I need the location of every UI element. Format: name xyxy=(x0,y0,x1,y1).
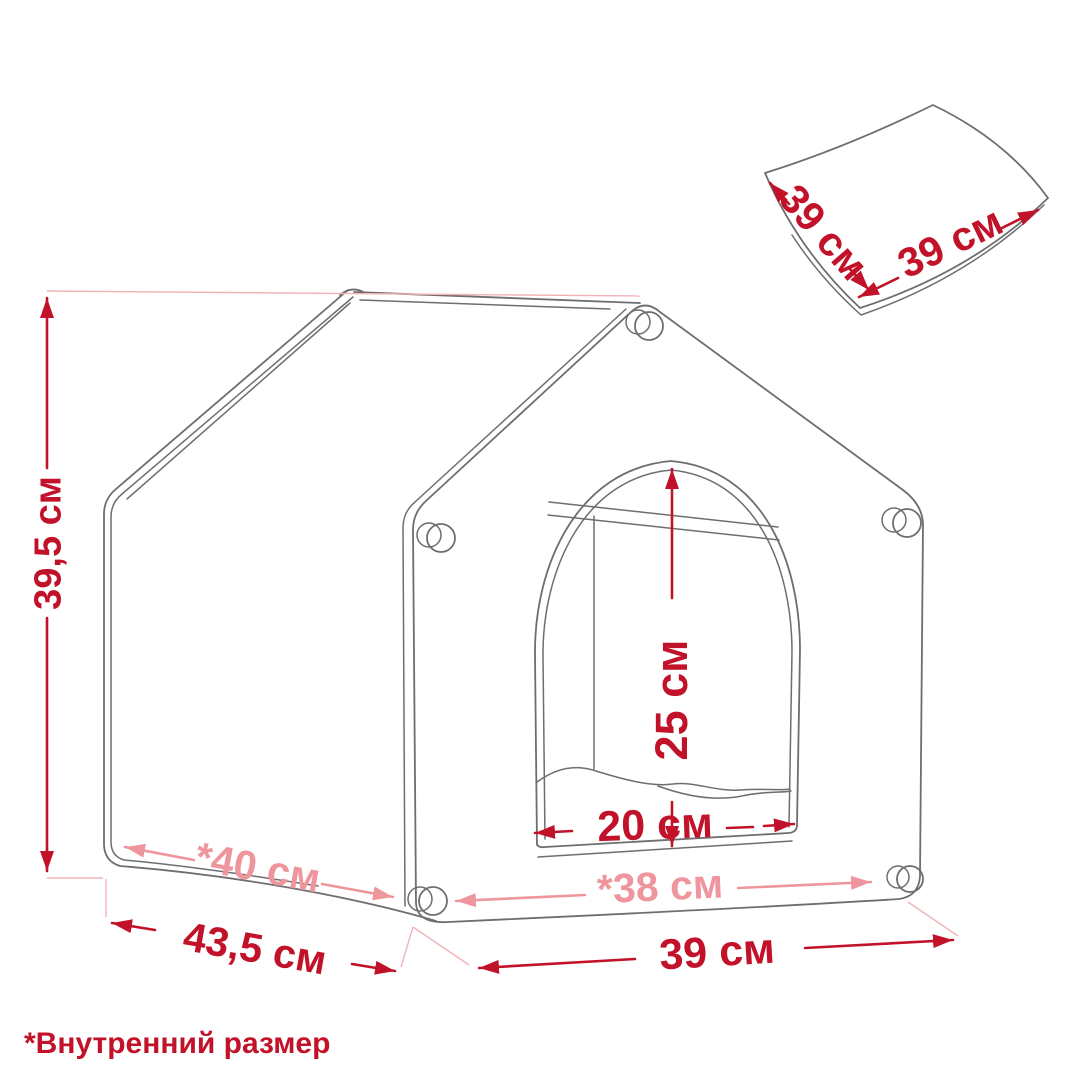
dim-cushion-b-label: 39 см xyxy=(891,198,1010,288)
dim-door-height-label: 25 см xyxy=(646,640,697,761)
peg-left-bottom xyxy=(408,887,447,915)
dimension-cushion-side-a: 39 см xyxy=(770,176,877,290)
peg-left-top xyxy=(417,523,455,552)
dim-depth-inner-label: *40 см xyxy=(192,833,324,901)
interior-bedding-wave xyxy=(537,768,790,791)
dim-height-label: 39,5 см xyxy=(27,476,69,610)
peg-top xyxy=(626,310,663,340)
dimension-door-height: 25 см xyxy=(646,469,697,846)
dim-cushion-a-label: 39 см xyxy=(770,176,877,289)
house-drawing xyxy=(104,289,923,922)
dim-depth-outer-label: 43,5 см xyxy=(180,913,330,983)
extension-line xyxy=(908,902,958,936)
dimension-height: 39,5 см xyxy=(27,291,640,878)
extension-line xyxy=(401,927,413,967)
dim-door-width-label: 20 см xyxy=(596,799,713,851)
interior-bedding-wave-2 xyxy=(658,786,791,798)
interior-top-rail-lower xyxy=(548,515,779,540)
side-wall-outline xyxy=(104,290,436,921)
house-front-panel-edge xyxy=(403,309,626,906)
dimension-width-outer: 39 см xyxy=(413,902,958,980)
dim-width-outer-label: 39 см xyxy=(658,925,776,980)
dimension-cushion-side-b: 39 см xyxy=(859,198,1038,297)
side-wall-inner-1 xyxy=(111,297,353,886)
extension-line xyxy=(413,927,469,965)
diagram-canvas: 39,5 см 43,5 см *40 см *38 см xyxy=(0,0,1080,1080)
footnote-internal-size: *Внутренний размер xyxy=(24,1027,330,1060)
dim-width-inner-label: *38 см xyxy=(596,860,724,912)
dimension-depth-outer: 43,5 см xyxy=(106,879,413,984)
pet-house-dimension-diagram: 39,5 см 43,5 см *40 см *38 см xyxy=(0,0,1080,1080)
side-wall-inner-2 xyxy=(127,303,350,499)
roof-ridge-inner xyxy=(360,300,610,309)
dimension-depth-inner: *40 см xyxy=(125,833,393,901)
peg-right-top xyxy=(882,508,921,537)
